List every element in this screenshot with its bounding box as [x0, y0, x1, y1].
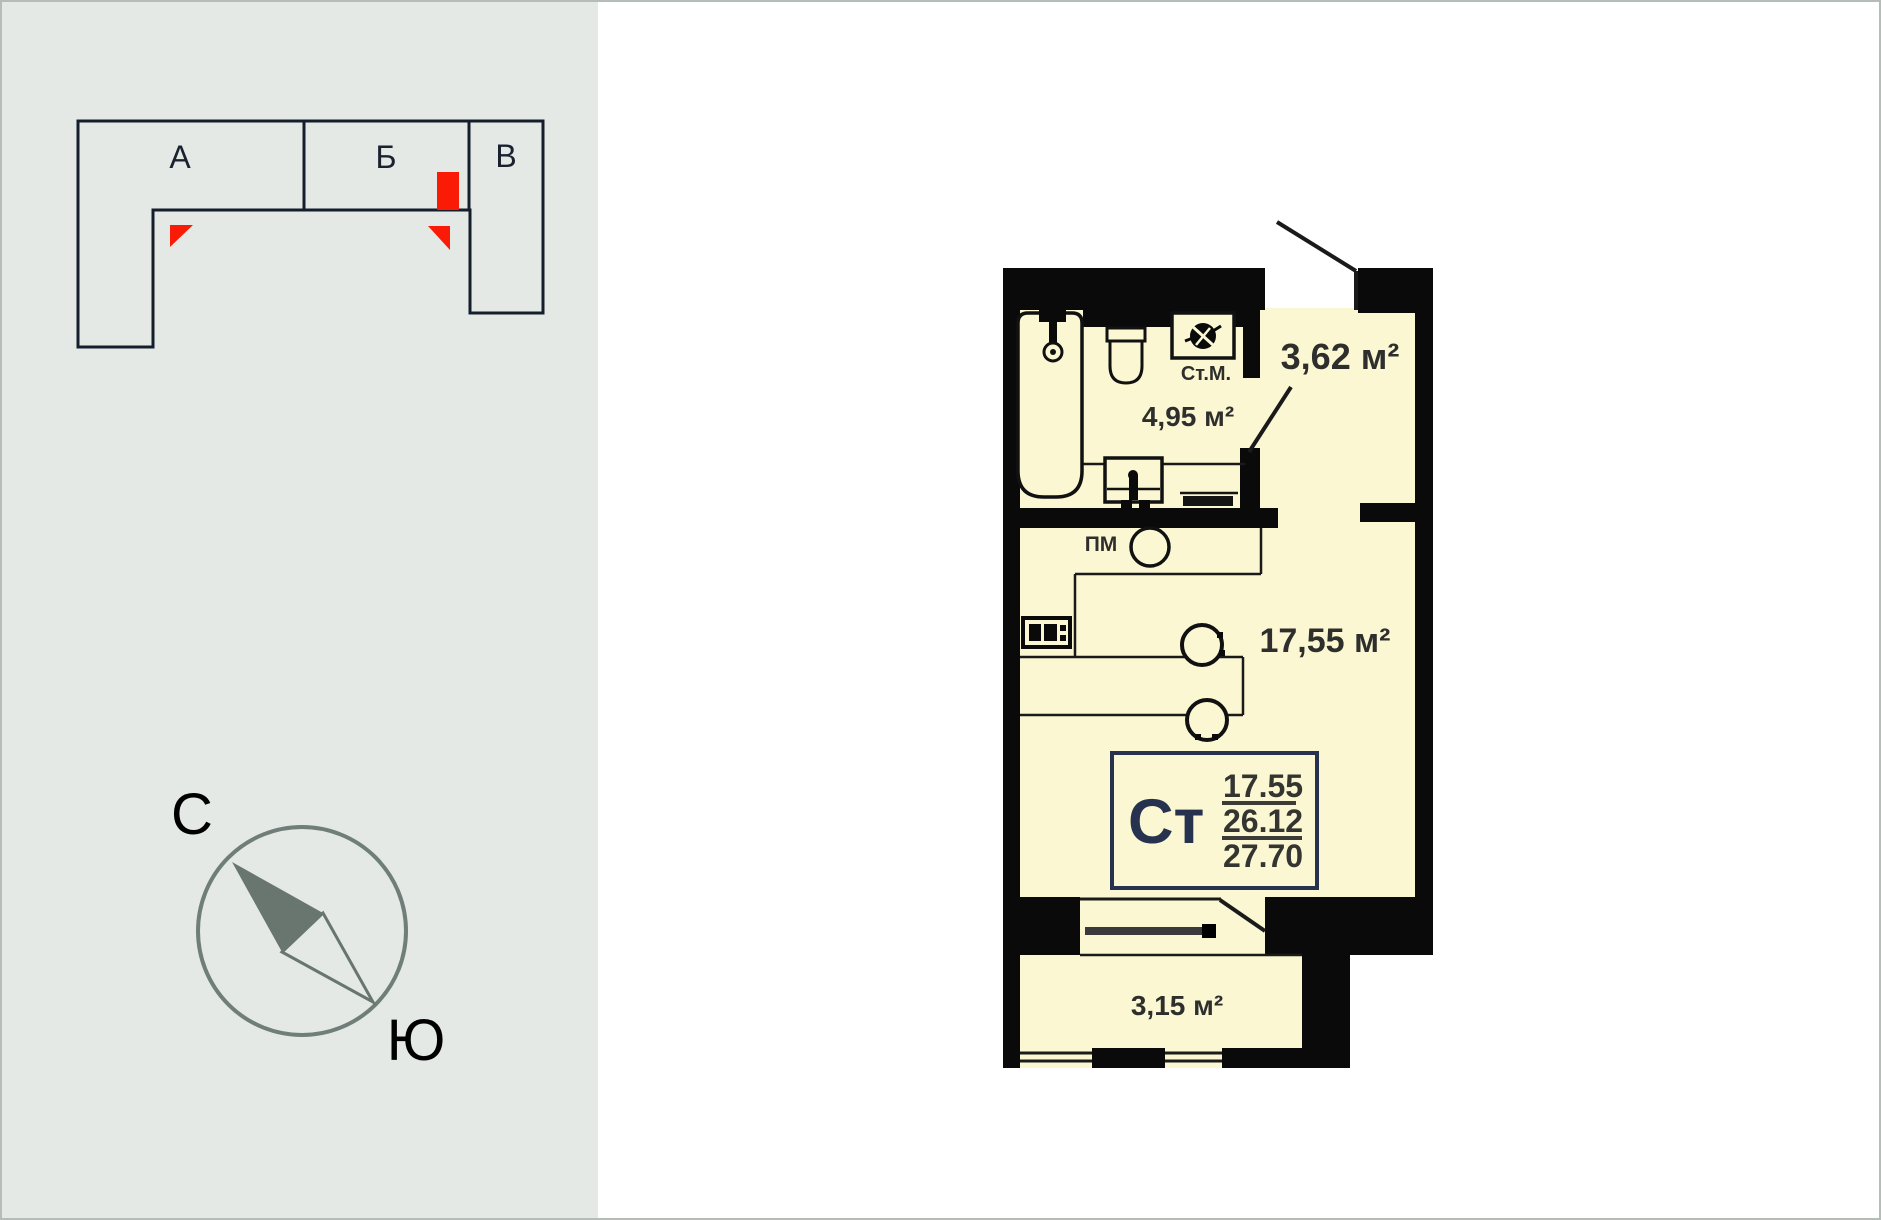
dishwasher-label: ПМ: [1085, 533, 1118, 556]
dishwasher-circle-icon: [1131, 528, 1169, 566]
south-label: Ю: [387, 1008, 446, 1073]
stool-tab: [1212, 734, 1218, 740]
stove-icon: [1023, 618, 1070, 647]
stove-burner: [1060, 635, 1066, 641]
section-label-b: Б: [376, 139, 397, 175]
north-label: С: [171, 782, 213, 847]
living-area-label: 17,55 м²: [1259, 622, 1390, 660]
unit-total-area-value: 27.70: [1223, 838, 1303, 874]
sink-icon: [1105, 458, 1162, 508]
floorplan-graphic: А Б В С Ю: [0, 0, 1881, 1220]
unit-type-label: Ст: [1128, 787, 1204, 857]
door-handle: [1202, 924, 1216, 938]
wall-segment: [1415, 268, 1433, 955]
bathroom-area-label: 4,95 м²: [1142, 401, 1234, 432]
stool-tab: [1219, 650, 1225, 656]
sink-foot: [1121, 500, 1132, 508]
floor-balcony-door: [1080, 897, 1265, 955]
apartment-marker: [437, 172, 459, 210]
wall-segment: [1240, 448, 1260, 508]
section-label-v: В: [495, 138, 516, 174]
wall-segment: [1003, 268, 1265, 310]
washing-machine-label: Ст.М.: [1181, 363, 1231, 385]
wall-segment: [1020, 508, 1278, 528]
bathtub-tap-stem: [1049, 320, 1057, 344]
stove-burner: [1044, 624, 1057, 641]
wall-segment: [1092, 1048, 1165, 1068]
unit-living-area-value: 17.55: [1223, 768, 1303, 804]
bathtub-tap: [1039, 308, 1066, 322]
stove-burner: [1029, 624, 1041, 641]
wall-segment: [1222, 1048, 1350, 1068]
threshold-grate-icon: [1183, 496, 1233, 506]
stool-icon: [1187, 700, 1227, 740]
sink-foot: [1139, 500, 1150, 508]
door-leaf: [1085, 927, 1202, 935]
washing-machine-icon: [1172, 313, 1234, 358]
bathtub-icon: [1018, 308, 1082, 497]
wall-segment: [1265, 897, 1433, 955]
stove-burner: [1060, 625, 1066, 631]
floor-plan: 3,62 м² 4,95 м² 17,55 м² 3,15 м² Ст.М. П…: [1003, 222, 1433, 1068]
section-label-a: А: [169, 139, 191, 175]
unit-area-value: 26.12: [1223, 803, 1303, 839]
floorplan-page: А Б В С Ю: [0, 0, 1881, 1220]
wall-segment: [1360, 503, 1415, 522]
balcony-area-label: 3,15 м²: [1131, 990, 1223, 1021]
wall-segment: [1243, 305, 1260, 378]
wall-segment: [1003, 897, 1080, 955]
bathtub-drain-dot: [1050, 349, 1056, 355]
sink-tap: [1129, 475, 1138, 500]
toilet-bowl: [1110, 341, 1142, 383]
stool-tab: [1195, 734, 1201, 740]
hallway-area-label: 3,62 м²: [1281, 336, 1400, 377]
toilet-icon: [1107, 328, 1145, 383]
stool-icon: [1182, 625, 1222, 665]
stool-tab: [1217, 632, 1223, 638]
toilet-tank: [1107, 328, 1145, 341]
